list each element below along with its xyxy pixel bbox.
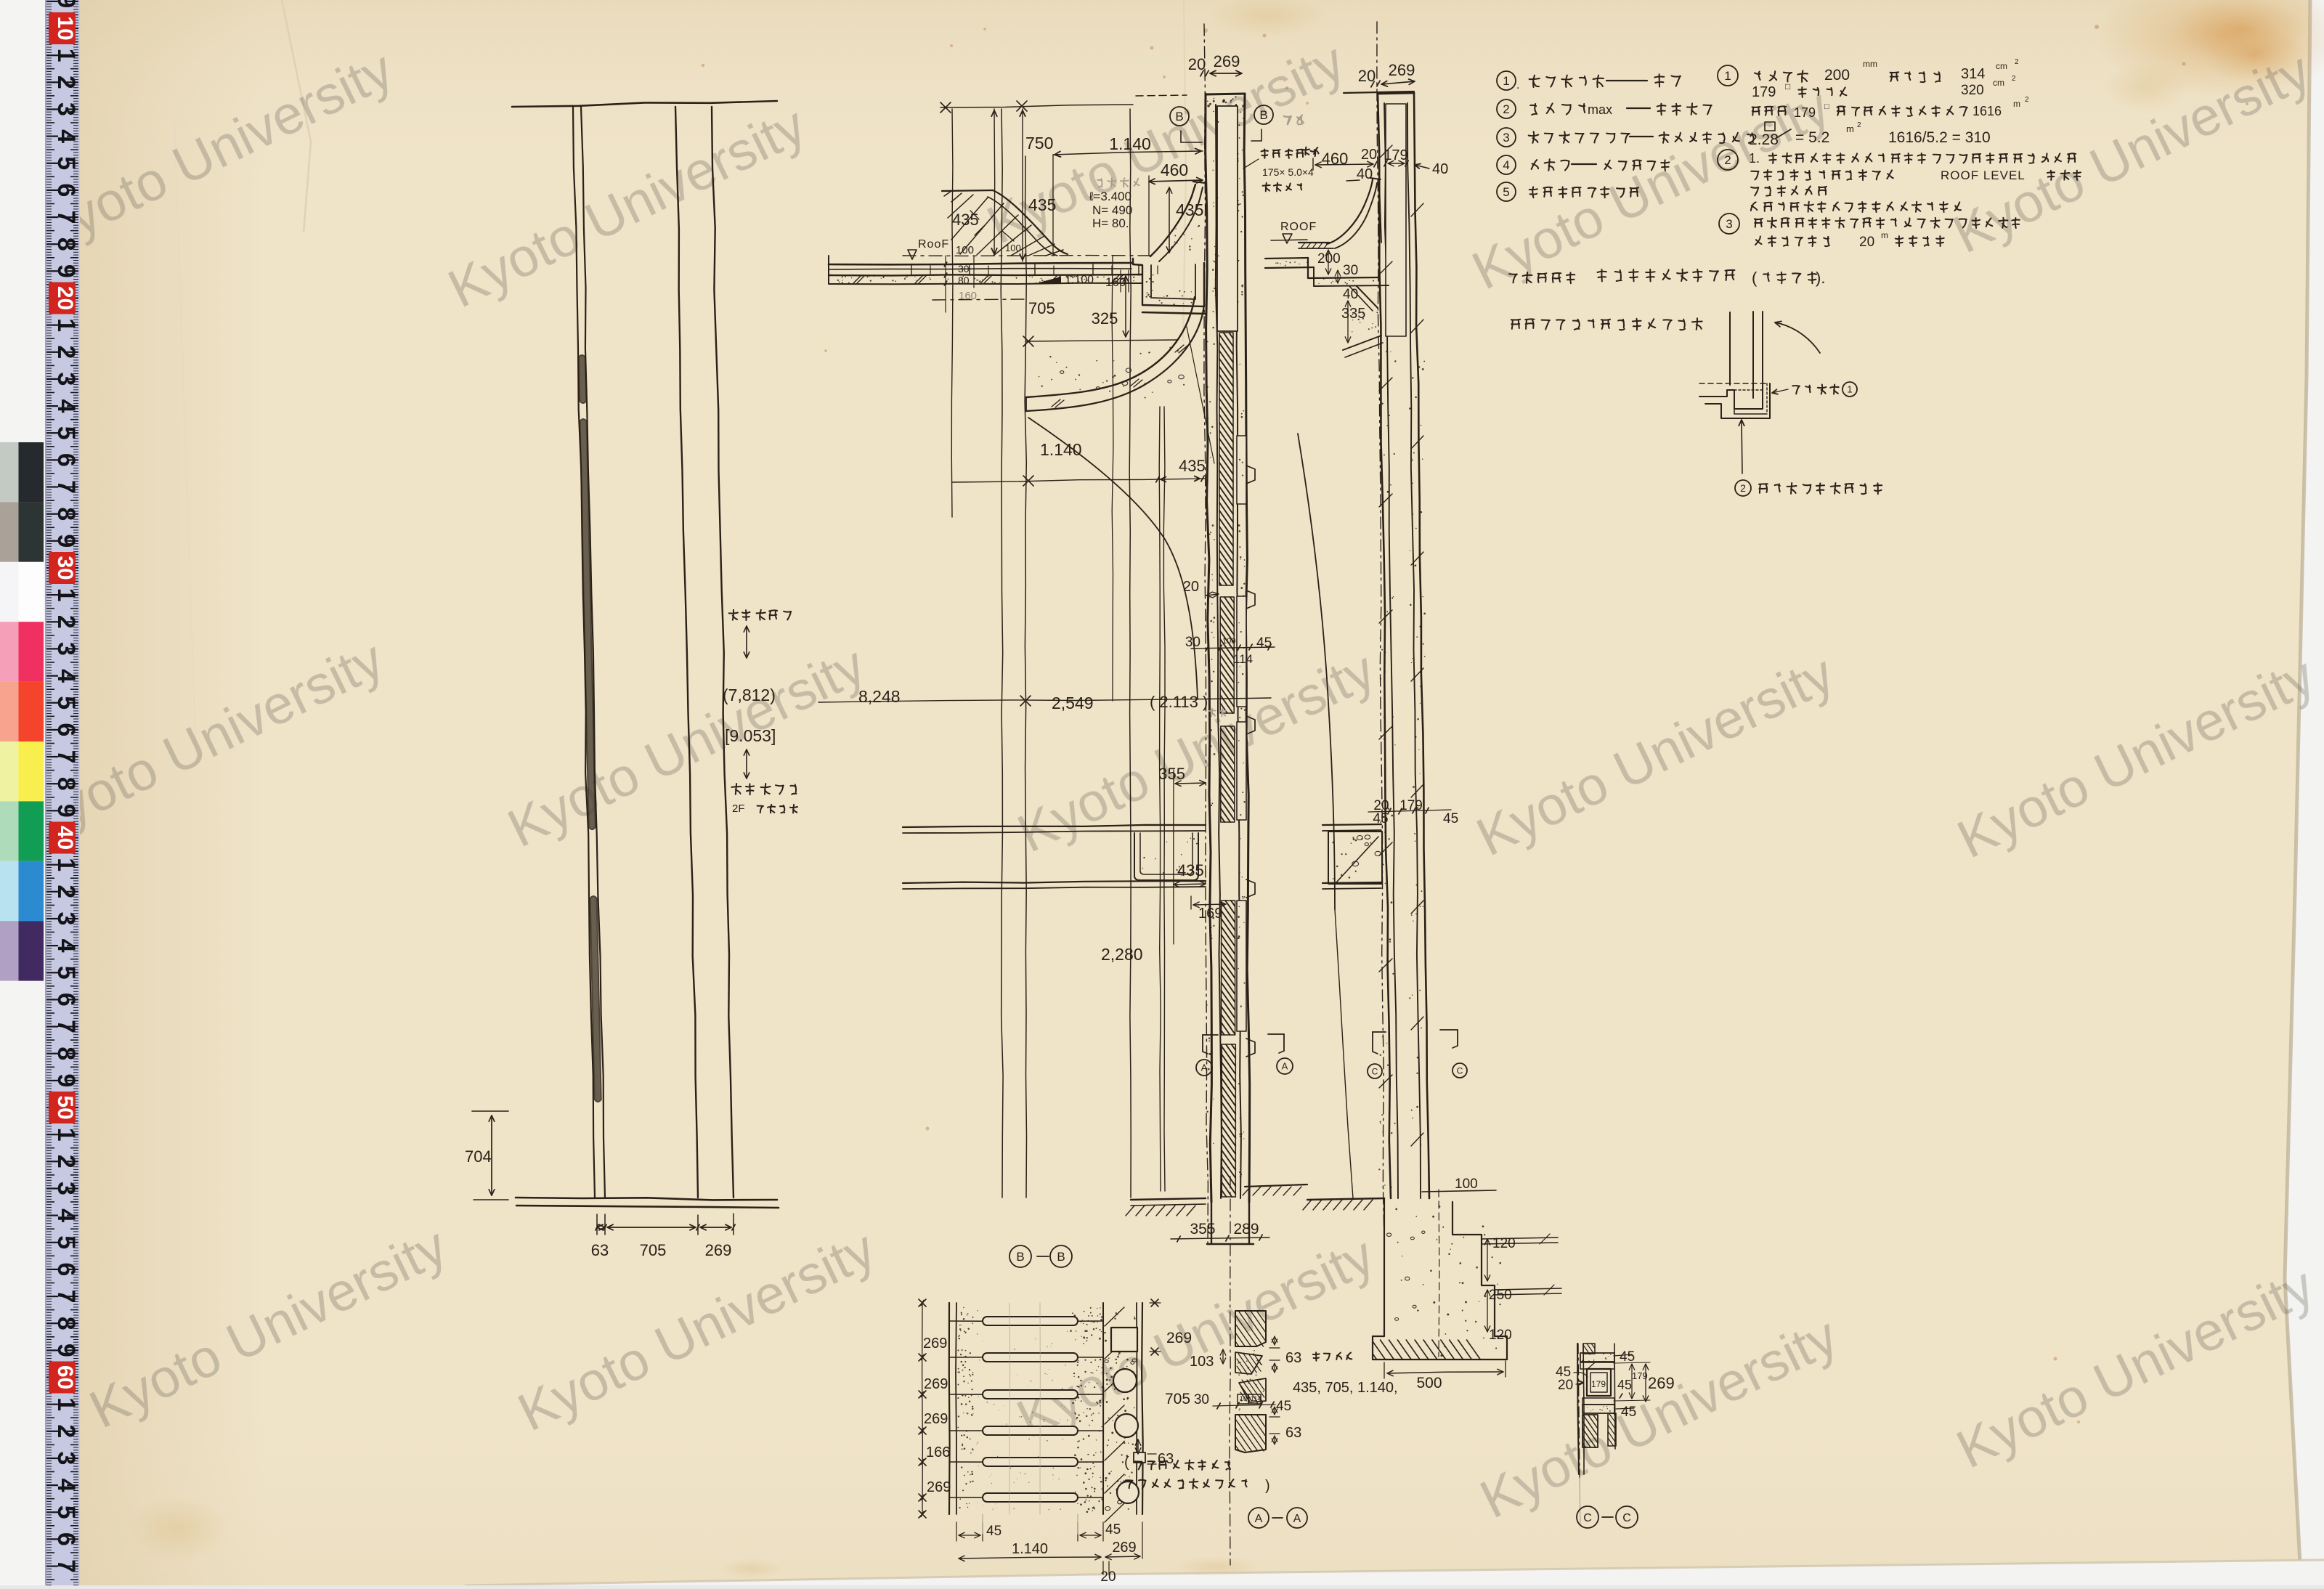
svg-text:4: 4 [52, 669, 80, 683]
svg-text:1: 1 [1503, 74, 1509, 88]
svg-text:B: B [1057, 1250, 1065, 1264]
svg-text:1: 1 [52, 318, 80, 332]
svg-text:100: 100 [1222, 637, 1235, 646]
svg-text:269: 269 [705, 1241, 732, 1259]
svg-text:3: 3 [52, 642, 80, 656]
svg-text:45: 45 [1256, 635, 1272, 651]
svg-text:7: 7 [52, 1290, 80, 1304]
svg-text:10: 10 [53, 16, 77, 40]
svg-text:460: 460 [1161, 160, 1188, 179]
svg-text:705: 705 [640, 1241, 667, 1259]
svg-text:20: 20 [1183, 579, 1199, 595]
svg-text:1616/5.2 = 310: 1616/5.2 = 310 [1888, 129, 1991, 146]
svg-text:2: 2 [2025, 96, 2029, 104]
svg-text:1: 1 [52, 1128, 80, 1142]
svg-text:166: 166 [926, 1444, 950, 1460]
svg-text:2: 2 [52, 885, 80, 898]
svg-text:[9.053]: [9.053] [725, 726, 776, 745]
svg-text:7: 7 [52, 1559, 80, 1573]
svg-text:6: 6 [52, 453, 80, 467]
svg-text:8: 8 [52, 777, 80, 791]
svg-text:9: 9 [52, 1073, 80, 1087]
svg-text:45: 45 [1621, 1405, 1636, 1420]
svg-text:355: 355 [1190, 1221, 1215, 1238]
svg-text:6: 6 [52, 1532, 80, 1546]
svg-text:4: 4 [52, 1479, 80, 1492]
svg-text:1.: 1. [1749, 151, 1760, 166]
svg-text:(7,812): (7,812) [723, 686, 776, 704]
svg-text:2: 2 [52, 345, 80, 359]
svg-text:179: 179 [1752, 84, 1776, 100]
svg-text:2: 2 [2012, 75, 2016, 83]
svg-text:20: 20 [1859, 235, 1874, 250]
svg-text:□: □ [1785, 81, 1790, 92]
svg-text:100: 100 [956, 244, 974, 256]
svg-text:8: 8 [52, 507, 80, 521]
svg-text:4: 4 [52, 399, 80, 413]
svg-text:5: 5 [52, 156, 80, 170]
svg-text:cm: cm [1993, 78, 2004, 88]
svg-text:179: 179 [1794, 105, 1816, 120]
svg-text:A: A [1201, 1062, 1208, 1073]
svg-text:269: 269 [924, 1411, 948, 1427]
svg-text:2: 2 [52, 615, 80, 629]
svg-text:A: A [1282, 1061, 1288, 1072]
svg-text:269: 269 [1214, 52, 1240, 70]
svg-text:.: . [1516, 79, 1519, 92]
svg-text:20: 20 [1361, 147, 1377, 163]
svg-text:): ) [1265, 1478, 1270, 1494]
svg-text:m: m [1881, 230, 1888, 240]
svg-text:45: 45 [1373, 811, 1388, 826]
svg-text:435: 435 [1176, 200, 1203, 219]
svg-text:179: 179 [1591, 1379, 1606, 1389]
svg-text:80: 80 [958, 275, 970, 286]
svg-text:200: 200 [1317, 251, 1341, 267]
svg-text:40: 40 [1432, 161, 1448, 177]
svg-text:169: 169 [1198, 906, 1222, 922]
svg-text:435: 435 [952, 211, 979, 229]
svg-text:60: 60 [53, 1365, 77, 1389]
svg-text:3: 3 [52, 911, 80, 925]
svg-text:704: 704 [465, 1147, 492, 1166]
svg-text:8: 8 [52, 1047, 80, 1060]
svg-text:355: 355 [1158, 765, 1185, 783]
svg-text:N= 490: N= 490 [1092, 203, 1132, 217]
svg-text:6: 6 [52, 723, 80, 736]
svg-text:cm: cm [1996, 61, 2007, 71]
svg-text:435: 435 [1028, 195, 1056, 214]
svg-text:5: 5 [52, 966, 80, 980]
svg-text:120: 120 [1489, 1328, 1512, 1343]
svg-text:500: 500 [1416, 1375, 1442, 1391]
svg-text:2: 2 [1857, 121, 1861, 129]
svg-text:= 5.2: = 5.2 [1795, 129, 1829, 146]
svg-text:1: 1 [1847, 384, 1852, 395]
svg-text:269: 269 [924, 1376, 948, 1392]
svg-text:160: 160 [959, 290, 977, 302]
svg-text:45: 45 [1620, 1349, 1635, 1365]
svg-text:2,280: 2,280 [1101, 945, 1143, 964]
svg-text:2: 2 [2015, 58, 2019, 66]
svg-text:100: 100 [1240, 1395, 1251, 1402]
svg-text:435: 435 [1177, 861, 1204, 879]
svg-text:3: 3 [52, 102, 80, 116]
svg-text:2: 2 [52, 1155, 80, 1169]
svg-text:50: 50 [53, 1095, 77, 1119]
svg-text:9: 9 [52, 0, 80, 8]
svg-text:705: 705 [1028, 299, 1055, 317]
svg-text:ROOF: ROOF [1280, 221, 1317, 233]
svg-text:1: 1 [52, 588, 80, 602]
svg-text:1616: 1616 [1972, 104, 2002, 118]
svg-text:(: ( [1752, 269, 1758, 287]
svg-text:45: 45 [1443, 811, 1458, 826]
svg-text:435: 435 [1179, 457, 1206, 475]
svg-text:8: 8 [52, 1317, 80, 1330]
svg-text:314: 314 [1961, 66, 1985, 82]
svg-text:269: 269 [1166, 1330, 1192, 1346]
svg-text:705: 705 [1165, 1391, 1190, 1407]
svg-text:2.28: 2.28 [1749, 131, 1779, 148]
svg-text:9: 9 [52, 1344, 80, 1357]
svg-text:1: 1 [52, 1397, 80, 1411]
svg-text:30: 30 [1343, 263, 1358, 278]
svg-text:30: 30 [1194, 1392, 1209, 1407]
svg-text:2: 2 [52, 1424, 80, 1438]
svg-text:325: 325 [1092, 309, 1118, 328]
svg-text:20: 20 [53, 286, 77, 310]
svg-text:6: 6 [52, 993, 80, 1007]
svg-text:6: 6 [52, 1262, 80, 1276]
svg-text:45: 45 [1276, 1399, 1291, 1414]
svg-text:C: C [1372, 1066, 1378, 1076]
svg-text:40: 40 [1343, 287, 1358, 302]
svg-text:□: □ [1824, 102, 1829, 111]
svg-text:2F: 2F [732, 802, 745, 815]
svg-text:max: max [1588, 102, 1612, 117]
svg-text:114: 114 [1251, 1395, 1261, 1402]
svg-text:4: 4 [1503, 158, 1509, 172]
svg-text:2: 2 [1724, 153, 1731, 167]
svg-text:5: 5 [1503, 185, 1509, 199]
svg-text:30: 30 [1185, 635, 1200, 650]
svg-text:289: 289 [1233, 1221, 1259, 1238]
svg-text:750: 750 [1025, 134, 1053, 153]
svg-text:3: 3 [52, 1182, 80, 1195]
svg-text:1: 1 [52, 49, 80, 62]
svg-text:7: 7 [52, 1020, 80, 1033]
svg-text:269: 269 [1389, 61, 1415, 79]
svg-text:3: 3 [1726, 217, 1732, 231]
svg-text:269: 269 [927, 1479, 951, 1495]
svg-text:2: 2 [1503, 102, 1509, 116]
svg-text:m: m [1846, 123, 1854, 134]
svg-text:63: 63 [1285, 1350, 1301, 1366]
svg-text:1:100: 1:100 [1065, 274, 1094, 286]
svg-text:C: C [1583, 1512, 1592, 1524]
svg-text:9: 9 [52, 534, 80, 548]
svg-text:5: 5 [52, 1235, 80, 1249]
svg-text:8: 8 [52, 237, 80, 251]
svg-text:6: 6 [52, 183, 80, 197]
svg-text:(: ( [1124, 1455, 1129, 1471]
svg-text:).: ). [1816, 269, 1825, 287]
svg-text:5: 5 [52, 426, 80, 440]
svg-text:269: 269 [1648, 1374, 1675, 1392]
svg-text:335: 335 [1341, 306, 1365, 322]
svg-text:3: 3 [1503, 131, 1509, 145]
svg-text:RooF: RooF [918, 238, 949, 251]
svg-text:2,549: 2,549 [1052, 694, 1094, 712]
svg-text:100: 100 [1005, 243, 1021, 253]
svg-text:40: 40 [53, 826, 77, 850]
svg-text:30: 30 [53, 556, 77, 580]
svg-text:2: 2 [52, 76, 80, 89]
svg-text:7: 7 [52, 211, 80, 224]
svg-text:2: 2 [1740, 482, 1746, 494]
svg-text:mm: mm [1863, 59, 1877, 69]
svg-text:114: 114 [1233, 652, 1253, 666]
svg-text:45: 45 [1105, 1522, 1121, 1537]
svg-text:200: 200 [1824, 67, 1850, 84]
svg-text:4: 4 [52, 129, 80, 143]
svg-text:H= 80.: H= 80. [1092, 216, 1129, 230]
svg-text:C: C [1457, 1065, 1463, 1076]
svg-text:435, 705, 1.140,: 435, 705, 1.140, [1293, 1380, 1398, 1396]
svg-text:m: m [2013, 99, 2020, 109]
svg-text:103: 103 [1190, 1354, 1214, 1370]
svg-text:20: 20 [1558, 1378, 1573, 1393]
svg-text:7: 7 [52, 480, 80, 494]
svg-text:1: 1 [52, 858, 80, 871]
svg-text:1.140: 1.140 [1040, 440, 1082, 459]
svg-text:269: 269 [1112, 1540, 1136, 1556]
svg-text:8,248: 8,248 [858, 687, 901, 706]
svg-text:9: 9 [52, 264, 80, 278]
svg-text:20: 20 [1358, 67, 1376, 85]
svg-text:30: 30 [958, 263, 970, 275]
svg-text:B: B [1259, 108, 1267, 122]
svg-text:3: 3 [52, 1451, 80, 1465]
svg-text:5: 5 [52, 1505, 80, 1519]
svg-text:320: 320 [1961, 83, 1984, 98]
svg-text:1: 1 [1724, 69, 1731, 83]
svg-text:100: 100 [1455, 1176, 1478, 1192]
svg-text:5: 5 [52, 696, 80, 710]
svg-text:4: 4 [52, 939, 80, 953]
svg-text:4: 4 [52, 1208, 80, 1222]
svg-text:63: 63 [591, 1241, 609, 1259]
svg-text:ℓ=3.400: ℓ=3.400 [1089, 190, 1131, 203]
svg-text:A: A [1255, 1513, 1263, 1525]
svg-text:175× 5.0×4: 175× 5.0×4 [1262, 166, 1314, 178]
svg-text:9: 9 [52, 804, 80, 818]
svg-text:A: A [1293, 1513, 1301, 1525]
svg-text:269: 269 [923, 1336, 947, 1352]
svg-text:ROOF LEVEL: ROOF LEVEL [1941, 168, 2026, 182]
svg-text:B: B [1016, 1250, 1024, 1264]
svg-text:45: 45 [1617, 1378, 1632, 1392]
svg-text:3: 3 [52, 372, 80, 386]
svg-text:( 2.113 ): ( 2.113 ) [1150, 693, 1208, 711]
svg-text:7: 7 [52, 750, 80, 764]
svg-text:B: B [1175, 110, 1183, 123]
svg-text:63: 63 [1285, 1425, 1301, 1441]
svg-text:C: C [1622, 1512, 1631, 1524]
svg-text:1.140: 1.140 [1012, 1541, 1048, 1557]
svg-text:45: 45 [986, 1524, 1001, 1539]
